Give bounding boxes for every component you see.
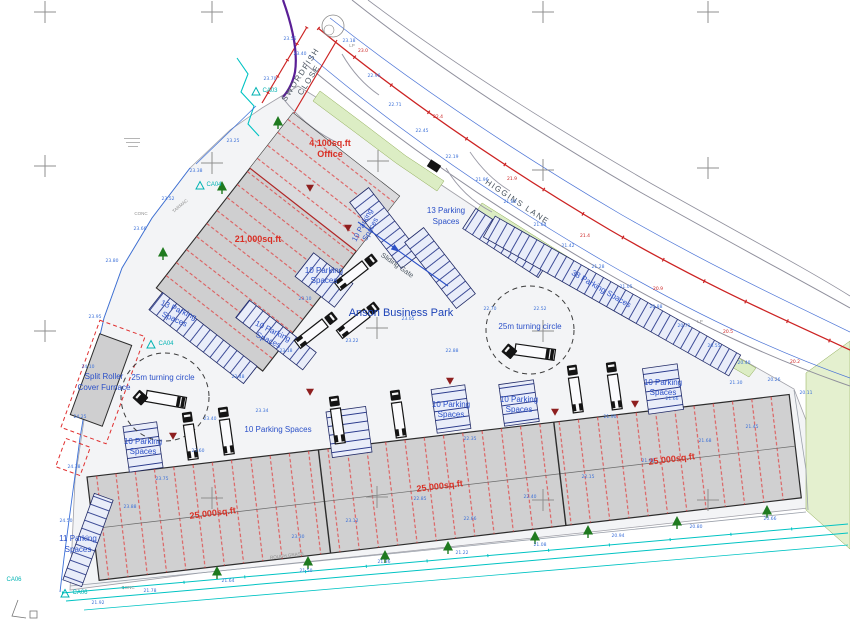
turning-circle-east-label: 25m turning circle [498, 322, 562, 331]
ca06-label-a: CA06 [72, 590, 88, 596]
svg-text:13 Parking: 13 Parking [427, 206, 465, 215]
svg-text:Split Roller: Split Roller [85, 372, 124, 381]
grid-cross-icon [34, 1, 56, 23]
site-plan-canvas: Anson Business Park HIGGINS LANE SWORDFI… [0, 0, 850, 623]
svg-text:4,100sq.ft: 4,100sq.ft [309, 138, 351, 148]
grid-cross-icon [34, 320, 56, 342]
ca04-label-a: CA04 [206, 182, 222, 188]
svg-text:Cover Furnace: Cover Furnace [78, 383, 131, 392]
park-name-label: Anson Business Park [349, 307, 454, 319]
svg-text:Spaces: Spaces [506, 405, 533, 414]
lp-label-b: LP [697, 319, 703, 324]
svg-text:10 Parking: 10 Parking [305, 266, 343, 275]
ca06-label-b: CA06 [6, 577, 22, 583]
grid-cross-icon [532, 1, 554, 23]
svg-text:10 Parking: 10 Parking [124, 437, 162, 446]
svg-text:11 Parking: 11 Parking [59, 534, 97, 543]
svg-text:Spaces: Spaces [130, 447, 157, 456]
ca04-label-b: CA04 [158, 341, 174, 347]
grid-cross-icon [697, 1, 719, 23]
parking10-label-g2: 10 Parking Spaces [244, 425, 311, 434]
grid-cross-icon [201, 1, 223, 23]
grid-cross-icon [697, 157, 719, 179]
grid-cross-icon [34, 155, 56, 177]
conc-label-b: CONC [121, 585, 135, 590]
survey-triangle-icon [252, 88, 260, 96]
unit-a-area-label: 21,000sq.ft [235, 234, 282, 244]
turning-circle-west-label: 25m turning circle [131, 373, 195, 382]
svg-text:10 Parking: 10 Parking [644, 378, 682, 387]
svg-text:Spaces: Spaces [433, 217, 460, 226]
conc-label-a: CONC [134, 211, 148, 216]
site-plan-page: Anson Business Park HIGGINS LANE SWORDFI… [0, 0, 850, 623]
svg-text:Spaces: Spaces [311, 276, 338, 285]
lp-label-a: LP [349, 43, 355, 48]
tree-canopy-icon [324, 25, 334, 35]
svg-text:10 Parking: 10 Parking [432, 400, 470, 409]
svg-text:10 Parking: 10 Parking [500, 395, 538, 404]
svg-text:Office: Office [317, 149, 343, 159]
svg-text:Spaces: Spaces [65, 545, 92, 554]
gate-post [427, 159, 441, 172]
svg-text:Spaces: Spaces [438, 410, 465, 419]
svg-text:Spaces: Spaces [650, 388, 677, 397]
ca03-label: CA03 [262, 88, 278, 94]
